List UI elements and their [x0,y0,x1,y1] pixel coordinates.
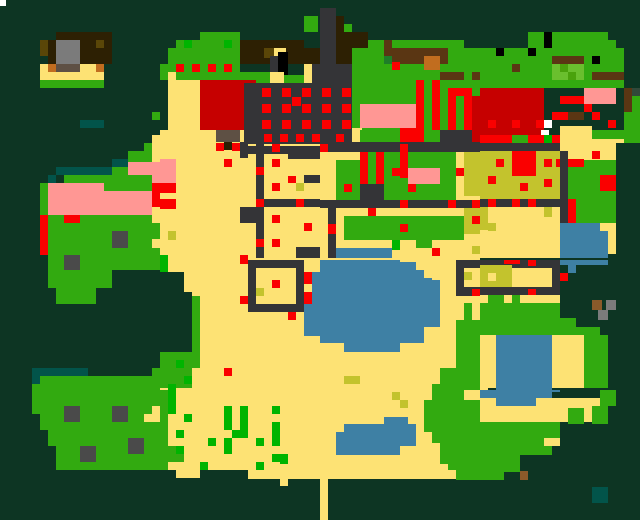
map-rect [280,478,288,486]
map-rect [152,239,160,248]
pool [592,487,608,503]
map-rect [568,112,584,120]
map-rect [568,207,576,223]
map-rect [128,438,144,454]
wheat-strip [464,152,480,196]
map-rect [304,48,320,64]
map-rect [296,134,304,142]
map-rect [160,272,184,292]
map-rect [552,260,560,287]
map-rect [184,376,192,384]
map-rect [336,248,392,258]
map-rect [528,135,544,143]
map-rect [272,454,288,462]
map-rect [272,239,280,247]
map-rect [320,144,328,152]
map-rect [262,120,271,129]
map-rect [592,151,600,159]
map-rect [368,208,376,216]
map-rect [480,230,488,258]
map-rect [592,72,624,80]
map-rect [96,64,104,72]
map-rect [368,152,376,184]
map-rect [480,207,488,230]
map-rect [488,176,496,184]
map-rect [176,446,184,454]
map-rect [312,272,320,304]
map-rect [224,406,232,430]
map-rect [240,207,264,223]
map-rect [440,56,448,64]
map-rect [296,199,304,207]
map-rect [232,143,240,151]
farmhouse-roof [56,32,112,40]
map-rect [488,199,496,207]
map-rect [440,443,480,464]
map-rect [184,40,192,48]
map-rect [168,72,176,80]
map-rect [32,376,40,384]
map-rect [504,260,520,264]
map-rect [360,130,400,142]
map-rect [160,292,192,352]
map-rect [288,176,296,183]
map-rect [302,104,311,113]
map-rect [408,168,440,184]
map-rect [536,398,600,406]
map-rect [632,96,640,112]
map-rect [528,199,536,207]
map-rect [384,40,392,56]
map-rect [292,97,301,106]
map-rect [256,438,264,446]
map-rect [608,40,616,48]
map-rect [272,144,280,152]
map-rect [488,273,496,281]
map-rect [392,392,400,400]
map-rect [400,200,408,208]
map-rect [272,215,280,223]
map-rect [176,360,184,368]
map-rect [224,438,232,454]
map-rect [600,223,616,231]
map-rect [488,223,496,231]
map-rect [376,152,384,184]
map-marker [0,0,6,6]
map-rect [472,289,480,296]
map-rect [368,40,464,48]
map-rect [336,160,360,200]
map-rect [192,64,200,72]
map-rect [552,32,608,48]
map-rect [272,183,280,191]
map-rect [616,143,640,260]
map-rect [456,168,464,176]
map-rect [152,183,160,209]
map-rect [80,446,96,462]
map-rect [560,273,568,281]
map-rect [592,300,602,310]
map-rect [592,112,600,120]
map-rect [192,296,200,368]
map-rect [400,224,408,232]
game-map [0,0,640,520]
map-rect [272,280,280,288]
map-rect [304,223,312,231]
map-rect [272,406,280,414]
map-rect [112,167,128,175]
map-rect [176,430,184,438]
map-rect [488,335,496,388]
map-rect [288,151,320,159]
map-rect [528,260,536,266]
map-rect [336,432,344,455]
map-rect [496,159,504,167]
map-rect [464,272,472,280]
map-rect [96,40,104,48]
lake-main [320,260,400,343]
map-rect [552,112,568,120]
map-rect [48,64,56,72]
map-rect [256,239,264,247]
creek [48,175,56,183]
pond-southeast [496,335,552,398]
map-rect [80,120,104,128]
map-rect [600,175,616,191]
map-rect [360,184,384,200]
map-rect [152,207,160,223]
map-rect [600,231,608,258]
map-rect [168,48,240,64]
map-rect [304,292,312,304]
map-rect [520,295,560,303]
map-rect [272,422,280,446]
map-rect [344,376,360,384]
map-rect [552,335,584,388]
map-rect [432,390,464,400]
map-rect [544,207,552,217]
map-rect [424,278,432,327]
map-rect [544,120,552,128]
map-rect [408,184,416,192]
map-rect [512,199,520,207]
map-rect [284,75,304,83]
map-rect [416,270,424,343]
map-rect [216,143,224,151]
map-rect [472,246,480,254]
map-rect [40,376,160,390]
map-rect [64,175,152,183]
map-rect [322,104,331,113]
map-rect [480,265,512,287]
map-rect [152,135,160,162]
map-rect [488,120,496,128]
map-rect [560,96,584,104]
map-rect [416,240,432,248]
map-rect [56,288,96,304]
map-rect [448,200,456,208]
map-rect [568,408,584,424]
map-rect [544,179,552,187]
map-rect [552,135,560,143]
map-rect [328,224,336,234]
map-rect [282,120,291,129]
map-rect [262,104,271,113]
map-rect [48,183,104,191]
map-rect [400,152,408,178]
map-rect [40,183,48,215]
map-rect [472,130,480,142]
map-rect [144,414,160,422]
map-rect [632,88,640,96]
lake-east [560,223,600,258]
map-rect [424,400,480,432]
map-rect [296,183,304,191]
map-rect [512,120,520,128]
map-rect [598,310,608,320]
map-rect [592,130,640,139]
flower-field-southwest [48,191,160,215]
map-rect [480,472,504,480]
map-rect [456,472,480,480]
map-rect [270,72,284,83]
map-rect [232,430,240,438]
map-rect [240,296,248,304]
map-rect [64,215,80,223]
map-rect [432,248,440,256]
map-rect [256,462,264,470]
map-rect [40,414,160,430]
map-rect [576,265,640,327]
map-rect [240,406,248,438]
map-rect [560,151,568,223]
map-rect [606,300,616,310]
map-rect [344,343,400,352]
map-rect [528,32,544,48]
map-rect [112,159,128,167]
map-rect [280,134,288,142]
watchtower [320,8,336,64]
map-rect [208,64,216,72]
map-rect [304,16,318,32]
map-rect [536,120,544,128]
map-rect [464,303,472,320]
map-rect [568,72,576,80]
map-rect [544,32,552,48]
map-rect [608,120,616,128]
map-rect [272,159,280,167]
map-rect [560,126,592,143]
map-rect [360,152,368,184]
map-rect [296,247,320,258]
map-rect [480,135,512,143]
map-rect [184,414,192,422]
map-rect [40,215,48,255]
map-rect [448,88,472,96]
map-rect [400,262,416,343]
map-rect [392,62,400,70]
map-rect [608,327,640,390]
map-rect [224,159,232,167]
map-rect [392,168,400,176]
map-rect [64,406,80,422]
map-rect [512,64,520,72]
map-rect [112,406,128,422]
map-rect [480,390,552,398]
map-rect [168,390,176,398]
map-rect [160,183,176,193]
map-rect [104,183,152,191]
map-rect [288,312,296,320]
map-rect [48,40,56,64]
map-rect [512,422,560,438]
map-rect [160,199,176,209]
map-rect [224,64,232,72]
map-rect [544,438,560,446]
map-rect [256,288,264,296]
map-rect [152,406,160,414]
map-rect [568,265,576,273]
map-rect [112,231,128,248]
map-rect [496,48,504,56]
map-rect [520,183,528,191]
map-rect [128,151,152,162]
map-rect [608,231,616,254]
map-rect [432,432,480,443]
map-rect [480,143,560,151]
map-rect [560,318,576,327]
foundation-east [456,260,464,296]
map-rect [312,134,320,142]
map-rect [240,260,248,264]
map-rect [544,135,552,143]
map-rect [480,455,520,472]
map-rect [40,80,104,88]
map-rect [342,88,351,97]
map-rect [256,199,264,207]
map-rect [344,152,352,160]
map-rect [552,390,560,392]
map-rect [472,216,480,224]
map-rect [584,88,616,104]
map-rect [322,120,331,129]
map-rect [560,143,616,160]
map-rect [496,398,536,406]
map-rect [344,184,352,192]
map-rect [48,270,112,288]
map-rect [248,470,400,479]
map-rect [408,424,416,446]
map-rect [168,231,176,240]
map-rect [304,272,312,284]
map-rect [512,151,536,176]
map-rect [302,88,311,97]
map-rect [224,142,232,150]
map-rect [240,142,248,158]
map-rect [152,112,160,120]
map-rect [440,368,456,390]
map-rect [600,390,616,406]
map-rect [208,438,216,446]
map-rect [304,175,320,183]
map-rect [56,167,112,175]
map-rect [344,424,400,455]
map-rect [552,56,584,64]
map-rect [56,446,160,470]
flower-field-north [360,104,416,128]
map-rect [512,135,528,143]
map-rect [456,320,480,390]
map-rect [528,48,536,56]
map-rect [176,470,200,478]
map-rect [592,56,600,64]
map-rect [32,368,88,376]
map-rect [200,462,208,470]
map-rect [592,406,608,424]
map-rect [440,72,464,80]
map-rect [200,32,240,40]
map-rect [342,120,351,129]
map-rect [296,260,304,312]
map-rect [264,199,320,207]
map-rect [40,40,48,56]
southwest-grove [32,390,160,414]
map-rect [480,335,488,390]
map-rect [304,304,320,336]
map-rect [432,280,440,327]
map-rect [262,88,271,97]
map-rect [56,64,80,72]
map-rect [312,64,352,84]
map-rect [584,104,592,112]
map-rect [392,240,400,250]
map-rect [520,471,528,480]
map-rect [560,327,600,335]
map-rect [480,295,488,303]
map-rect [424,56,440,70]
map-rect [152,368,160,376]
map-rect [480,398,496,406]
map-rect [168,80,200,132]
map-rect [584,335,608,388]
map-rect [424,130,440,142]
map-rect [336,16,344,32]
map-rect [282,88,291,97]
map-rect [168,398,176,414]
map-rect [384,56,392,64]
south-path [320,479,328,520]
map-rect [264,134,272,142]
map-rect [544,159,552,167]
map-rect [342,104,351,113]
map-rect [216,130,240,142]
map-rect [256,167,264,175]
map-rect [472,200,480,208]
map-rect [302,120,311,129]
farmhouse-stone [56,40,80,64]
map-rect [560,64,568,72]
map-rect [224,368,232,376]
map-rect [400,470,456,479]
map-rect [176,64,184,72]
map-rect [344,24,352,32]
map-rect [160,260,168,272]
map-rect [248,260,256,312]
map-rect [400,400,408,408]
map-rect [160,390,168,470]
map-rect [322,88,331,97]
map-rect [504,295,512,303]
